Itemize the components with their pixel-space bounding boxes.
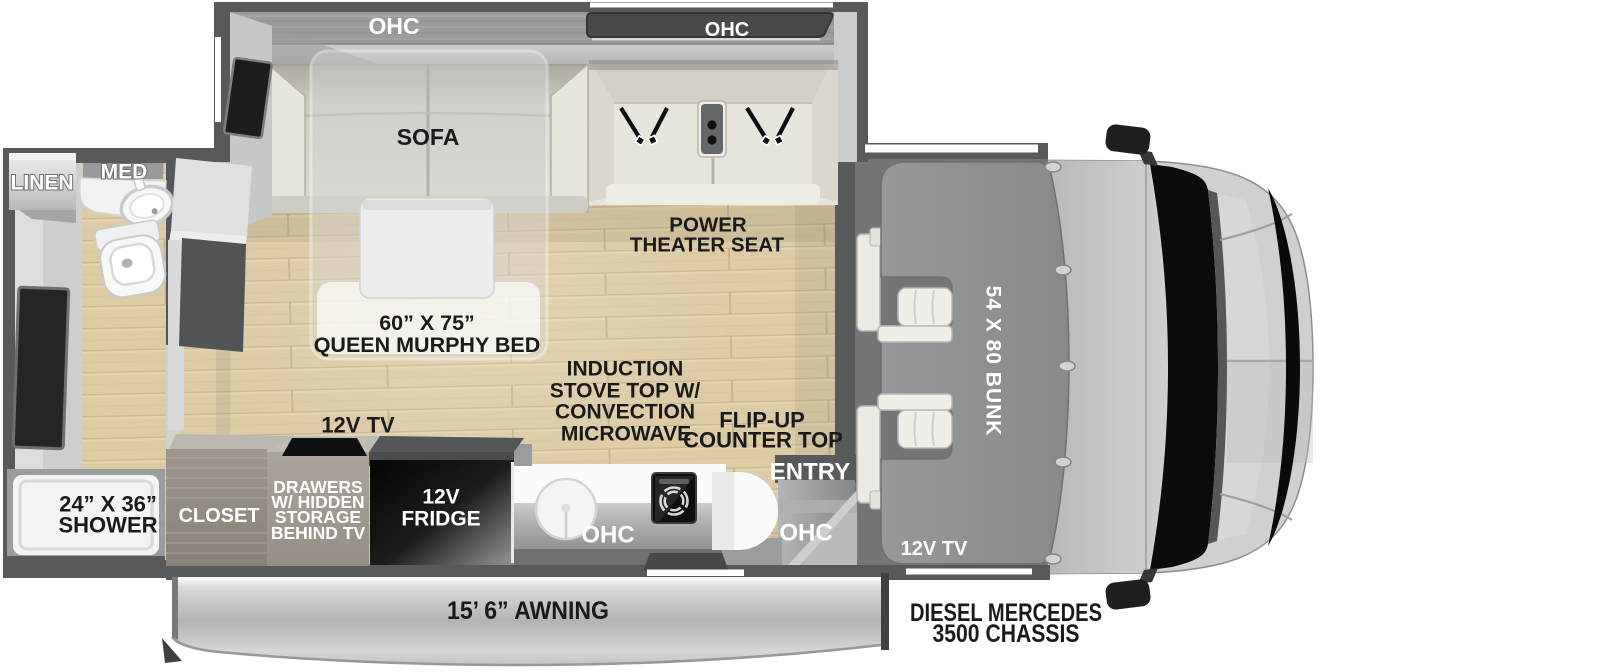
svg-text:FRIDGE: FRIDGE xyxy=(401,508,480,531)
svg-text:QUEEN MURPHY BED: QUEEN MURPHY BED xyxy=(314,333,541,357)
svg-text:OHC: OHC xyxy=(705,19,749,41)
svg-text:OHC: OHC xyxy=(368,13,419,39)
svg-text:ENTRY: ENTRY xyxy=(770,459,850,486)
svg-text:12V: 12V xyxy=(422,486,459,509)
svg-text:THEATER SEAT: THEATER SEAT xyxy=(630,234,785,257)
svg-text:CONVECTION: CONVECTION xyxy=(555,401,695,424)
svg-text:12V TV: 12V TV xyxy=(901,538,968,560)
svg-text:LINEN: LINEN xyxy=(11,172,74,195)
svg-text:12V TV: 12V TV xyxy=(321,413,395,438)
svg-text:3500 CHASSIS: 3500 CHASSIS xyxy=(933,620,1080,648)
svg-text:SHOWER: SHOWER xyxy=(59,513,158,538)
svg-text:COUNTER TOP: COUNTER TOP xyxy=(683,428,843,453)
svg-text:STOVE TOP W/: STOVE TOP W/ xyxy=(550,380,701,403)
svg-text:CLOSET: CLOSET xyxy=(178,505,259,527)
svg-text:OHC: OHC xyxy=(581,522,634,549)
svg-text:60” X 75”: 60” X 75” xyxy=(379,311,475,335)
svg-text:BEHIND TV: BEHIND TV xyxy=(271,523,366,543)
svg-text:MICROWAVE: MICROWAVE xyxy=(561,423,691,446)
svg-text:54 X 80 BUNK: 54 X 80 BUNK xyxy=(982,286,1005,437)
svg-text:MED: MED xyxy=(101,161,148,184)
svg-text:INDUCTION: INDUCTION xyxy=(567,358,684,381)
svg-text:SOFA: SOFA xyxy=(397,124,460,150)
svg-text:OHC: OHC xyxy=(779,520,832,547)
svg-text:15’ 6” AWNING: 15’ 6” AWNING xyxy=(447,597,609,625)
